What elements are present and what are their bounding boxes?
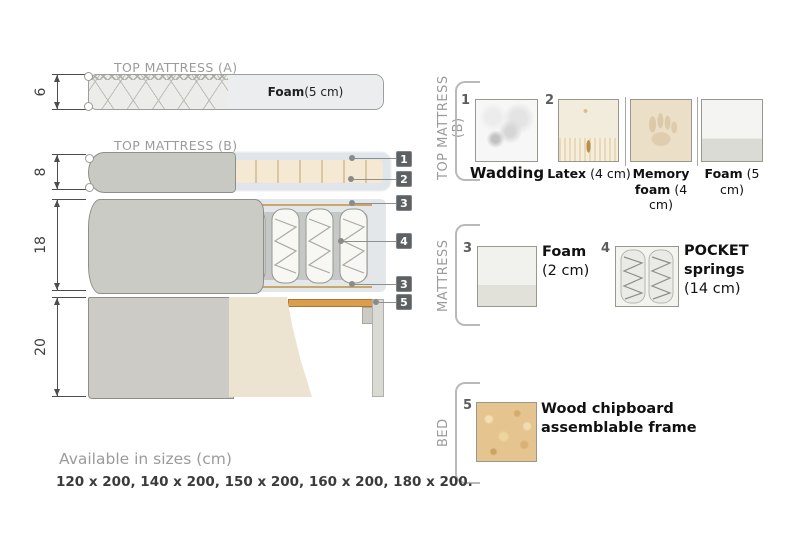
zigzag-seam	[89, 75, 228, 80]
dimension-6cm: 6	[52, 74, 86, 110]
mattress-construction-diagram: 6 8 18 20 TOP MATTRESS (A) TOP MATTRESS …	[0, 0, 800, 533]
foam-5cm-swatch	[701, 99, 763, 162]
legend-group-bed-label: BED	[436, 408, 451, 458]
callout-leader	[352, 284, 396, 285]
extension-line	[52, 189, 86, 190]
legend-group-mattress-label: MATTRESS	[436, 232, 451, 320]
foam-5cm-caption: Foam (5 cm)	[692, 166, 772, 197]
bed-cover-drape	[229, 297, 312, 397]
caption-name: Foam	[705, 166, 743, 181]
caption-name: Wadding	[470, 164, 544, 182]
callout-leader	[352, 203, 396, 204]
tuft-button	[85, 183, 94, 192]
legend-divider	[697, 97, 698, 166]
caption-detail: (2 cm)	[542, 262, 612, 281]
tuft-button	[85, 154, 94, 163]
dimension-18cm: 18	[52, 199, 86, 291]
pocket-springs-caption: POCKET springs (14 cm)	[684, 242, 770, 299]
foam-section-label: Foam (5 cm)	[228, 75, 383, 109]
callout-leader	[341, 241, 396, 242]
mattress-fabric-cover	[88, 199, 264, 294]
callout-badge-3-bottom: 3	[396, 276, 412, 292]
arrow-up-icon	[54, 155, 60, 162]
callout-badge-3-top: 3	[396, 195, 412, 211]
tuft-button	[84, 102, 93, 111]
extension-line	[52, 290, 86, 291]
caption-name: Foam	[542, 244, 586, 260]
caption-detail: (14 cm)	[684, 280, 770, 299]
bed-side-rail	[372, 299, 384, 397]
callout-badge-1: 1	[396, 151, 412, 167]
dimension-value: 6	[33, 77, 49, 107]
caption-name: Wood chipboard assemblable frame	[541, 401, 697, 436]
dimension-value: 18	[33, 230, 49, 260]
pocket-springs-swatch	[615, 246, 679, 307]
legend-item-number: 4	[601, 241, 610, 256]
wood-chipboard-swatch	[476, 402, 537, 462]
caption-name: Latex	[547, 166, 586, 181]
arrow-down-icon	[54, 389, 60, 396]
extension-line	[52, 109, 86, 110]
dimension-20cm: 20	[52, 297, 86, 397]
top-mattress-b-fabric-cover	[88, 152, 236, 193]
tuft-button	[84, 72, 93, 81]
pocket-springs-icon	[616, 247, 678, 306]
dimension-line	[57, 200, 58, 290]
wadding-swatch	[475, 99, 538, 162]
extension-line	[52, 396, 86, 397]
legend-item-number: 5	[463, 398, 472, 413]
arrow-up-icon	[54, 298, 60, 305]
bed-wood-slat	[288, 299, 377, 307]
callout-badge-4: 4	[396, 233, 412, 249]
wood-chipboard-caption: Wood chipboard assemblable frame	[541, 400, 741, 438]
memory-foam-swatch	[630, 99, 692, 162]
callout-badge-5: 5	[396, 294, 412, 310]
top-mattress-a-illustration: Foam (5 cm)	[88, 74, 384, 110]
foam-label-name: Foam	[268, 85, 305, 99]
callout-leader	[352, 158, 396, 159]
arrow-up-icon	[54, 200, 60, 207]
memory-foam-caption: Memory foam (4 cm)	[621, 166, 701, 213]
callout-leader	[376, 302, 396, 303]
legend-item-number: 1	[461, 93, 470, 108]
foam-label-detail: (5 cm)	[304, 85, 343, 99]
available-sizes-list: 120 x 200, 140 x 200, 150 x 200, 160 x 2…	[56, 474, 473, 490]
legend-divider	[625, 97, 626, 166]
latex-swatch	[558, 99, 619, 162]
foam-2cm-swatch	[477, 246, 537, 307]
quilted-cover-section	[89, 75, 229, 109]
available-sizes-title: Available in sizes (cm)	[59, 450, 232, 468]
dimension-line	[57, 298, 58, 396]
arrow-up-icon	[54, 75, 60, 82]
latex-caption: Latex (4 cm)	[546, 166, 632, 182]
dimension-8cm: 8	[52, 154, 86, 190]
bed-fabric-cover	[88, 297, 234, 399]
arrow-down-icon	[54, 102, 60, 109]
legend-item-number: 2	[545, 93, 554, 108]
arrow-down-icon	[54, 182, 60, 189]
legend-item-number: 3	[463, 241, 472, 256]
dimension-value: 20	[33, 332, 49, 362]
dimension-value: 8	[33, 157, 49, 187]
callout-badge-2: 2	[396, 171, 412, 187]
top-mattress-a-title: TOP MATTRESS (A)	[114, 60, 238, 75]
arrow-down-icon	[54, 283, 60, 290]
callout-leader	[351, 179, 396, 180]
caption-name: POCKET springs	[684, 243, 749, 278]
top-mattress-b-title: TOP MATTRESS (B)	[114, 138, 238, 153]
